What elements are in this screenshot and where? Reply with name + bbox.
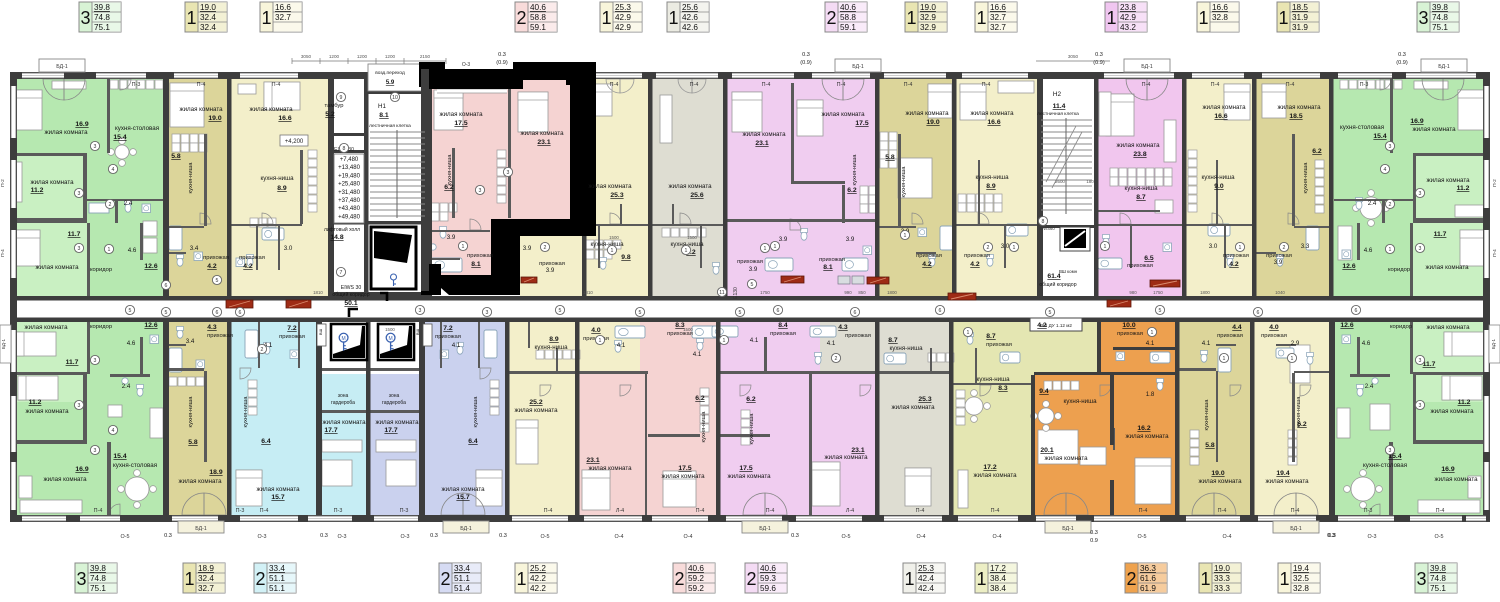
svg-text:кухня-ниша: кухня-ниша [1063, 398, 1097, 405]
svg-text:19.0: 19.0 [1211, 470, 1224, 477]
svg-text:1810: 1810 [313, 290, 323, 295]
svg-text:42.9: 42.9 [615, 23, 631, 32]
svg-text:П-4: П-4 [690, 82, 699, 88]
svg-text:П-3: П-3 [236, 508, 245, 514]
svg-text:прихожая: прихожая [737, 259, 763, 265]
svg-text:8.3: 8.3 [998, 385, 1008, 392]
svg-text:1: 1 [1013, 245, 1016, 251]
svg-text:3.9: 3.9 [846, 236, 855, 243]
svg-text:1: 1 [1389, 247, 1392, 253]
svg-text:4: 4 [1384, 167, 1387, 173]
svg-text:3: 3 [76, 569, 86, 589]
svg-text:1.8: 1.8 [1146, 391, 1155, 398]
svg-text:БД-1: БД-1 [195, 526, 207, 532]
svg-text:0.3: 0.3 [1090, 530, 1098, 536]
svg-text:П-2: П-2 [1492, 179, 1498, 187]
svg-text:32.9: 32.9 [920, 13, 936, 22]
svg-text:4.1: 4.1 [617, 342, 626, 349]
svg-text:1: 1 [1279, 569, 1289, 589]
svg-text:4: 4 [112, 167, 115, 173]
svg-text:8.9: 8.9 [277, 185, 287, 192]
svg-text:О-4: О-4 [917, 534, 926, 540]
svg-text:(0.9): (0.9) [1396, 60, 1408, 66]
svg-text:1: 1 [108, 247, 111, 253]
svg-text:74.8: 74.8 [1432, 13, 1448, 22]
svg-text:2: 2 [1126, 569, 1136, 589]
svg-text:75.1: 75.1 [90, 584, 106, 593]
svg-text:3.9: 3.9 [447, 234, 456, 241]
svg-text:кухня-ниша: кухня-ниша [901, 166, 907, 198]
svg-text:7.2: 7.2 [443, 325, 453, 332]
svg-text:59.3: 59.3 [760, 574, 776, 583]
svg-text:17.5: 17.5 [678, 465, 691, 472]
svg-text:25.6: 25.6 [682, 3, 698, 12]
svg-text:59.1: 59.1 [840, 23, 856, 32]
svg-text:9.8: 9.8 [621, 254, 631, 261]
svg-text:4.6: 4.6 [1364, 247, 1373, 254]
svg-text:жилая комната: жилая комната [375, 419, 419, 426]
svg-text:прихожая: прихожая [467, 253, 493, 259]
svg-text:36.3: 36.3 [1140, 564, 1156, 573]
svg-text:11.7: 11.7 [1434, 231, 1447, 238]
svg-text:10.0: 10.0 [1122, 322, 1135, 329]
svg-text:11.7: 11.7 [66, 359, 79, 366]
svg-text:жилая комната: жилая комната [439, 111, 483, 118]
svg-text:12.6: 12.6 [1342, 263, 1355, 270]
svg-text:1: 1 [668, 8, 678, 28]
svg-text:гардероба: гардероба [331, 400, 355, 406]
svg-text:39.8: 39.8 [94, 3, 110, 12]
svg-text:32.7: 32.7 [198, 584, 214, 593]
svg-text:8.7: 8.7 [888, 337, 898, 344]
svg-text:кухня-столовая: кухня-столовая [113, 462, 157, 469]
svg-text:жилая комната: жилая комната [970, 110, 1014, 117]
svg-text:кухня-ниша: кухня-ниша [852, 154, 858, 186]
svg-text:ВШ: ВШ [318, 329, 323, 336]
svg-text:17.2: 17.2 [990, 564, 1006, 573]
svg-text:П-4: П-4 [272, 82, 281, 88]
svg-text:1: 1 [774, 244, 777, 250]
svg-text:11.2: 11.2 [31, 187, 44, 194]
svg-text:6.2: 6.2 [847, 187, 857, 194]
svg-text:6: 6 [239, 310, 242, 316]
svg-text:жилая комната: жилая комната [821, 111, 865, 118]
svg-text:15.7: 15.7 [271, 494, 284, 501]
svg-text:9.0: 9.0 [1214, 183, 1224, 190]
svg-text:12.6: 12.6 [144, 263, 157, 270]
svg-text:3.0: 3.0 [1001, 243, 1010, 250]
svg-text:23.1: 23.1 [851, 447, 864, 454]
svg-text:4.3: 4.3 [838, 324, 848, 331]
svg-text:4.1: 4.1 [1202, 340, 1211, 347]
svg-text:жилая комната: жилая комната [1412, 126, 1456, 133]
svg-text:6: 6 [1355, 308, 1358, 314]
svg-text:кухня-ниша: кухня-ниша [473, 396, 479, 428]
svg-text:3.4: 3.4 [190, 245, 199, 252]
svg-text:О-3: О-3 [258, 534, 267, 540]
svg-text:4.6: 4.6 [127, 340, 136, 347]
svg-text:О-5: О-5 [1435, 534, 1444, 540]
svg-text:П-4: П-4 [610, 82, 619, 88]
svg-text:6.2: 6.2 [1312, 148, 1322, 155]
svg-text:БД-1: БД-1 [1491, 338, 1496, 349]
svg-text:+37,480: +37,480 [338, 198, 361, 204]
svg-text:0.3: 0.3 [498, 52, 506, 58]
svg-text:лестничная клетка: лестничная клетка [1037, 112, 1079, 117]
svg-text:кухня-ниша: кухня-ниша [749, 413, 755, 445]
svg-text:59.6: 59.6 [760, 584, 776, 593]
svg-text:прихожая: прихожая [1117, 331, 1143, 337]
svg-text:прихожая: прихожая [1127, 263, 1153, 269]
svg-text:2: 2 [987, 245, 990, 251]
svg-text:3.9: 3.9 [749, 266, 758, 273]
svg-text:3: 3 [94, 144, 97, 150]
svg-text:16.9: 16.9 [75, 466, 88, 473]
svg-text:5: 5 [751, 282, 754, 288]
svg-text:БД-1: БД-1 [460, 526, 472, 532]
svg-text:6: 6 [939, 308, 942, 314]
svg-text:М: М [389, 336, 393, 342]
svg-text:7: 7 [340, 270, 343, 276]
svg-text:О-3: О-3 [401, 534, 410, 540]
svg-text:38.4: 38.4 [990, 584, 1006, 593]
svg-text:11.2: 11.2 [29, 399, 42, 406]
svg-text:жилая комната: жилая комната [1044, 455, 1088, 462]
svg-text:1750: 1750 [760, 290, 770, 295]
svg-text:23.1: 23.1 [586, 457, 599, 464]
svg-text:3.9: 3.9 [779, 236, 788, 243]
svg-text:П-4: П-4 [260, 508, 269, 514]
svg-text:кухня-ниша: кухня-ниша [188, 162, 194, 194]
svg-text:17.5: 17.5 [739, 465, 752, 472]
svg-text:П-4: П-4 [94, 508, 103, 514]
svg-text:6.2: 6.2 [746, 396, 756, 403]
svg-text:жилая комната: жилая комната [441, 486, 485, 493]
svg-text:15.4: 15.4 [1373, 133, 1386, 140]
svg-text:8.1: 8.1 [471, 261, 481, 268]
svg-text:4.0: 4.0 [1269, 324, 1279, 331]
svg-text:3: 3 [94, 448, 97, 454]
svg-text:3: 3 [78, 403, 81, 409]
svg-text:жилая комната: жилая комната [588, 465, 632, 472]
svg-text:1: 1 [186, 8, 196, 28]
svg-text:+19,480: +19,480 [338, 173, 361, 179]
svg-text:жилая комната: жилая комната [1202, 104, 1246, 111]
svg-text:25.2: 25.2 [530, 564, 546, 573]
svg-text:42.2: 42.2 [530, 574, 546, 583]
svg-text:коридор: коридор [90, 267, 112, 273]
svg-text:19.0: 19.0 [200, 3, 216, 12]
svg-text:0.3: 0.3 [499, 533, 507, 539]
svg-text:1: 1 [764, 246, 767, 252]
svg-text:П-4: П-4 [762, 82, 771, 88]
svg-text:П-4: П-4 [0, 249, 6, 257]
svg-text:П-4: П-4 [1139, 508, 1148, 514]
svg-text:жилая комната: жилая комната [1198, 478, 1242, 485]
svg-text:32.7: 32.7 [990, 13, 1006, 22]
svg-text:1: 1 [1223, 356, 1226, 362]
svg-text:жилая комната: жилая комната [256, 486, 300, 493]
svg-text:П-4: П-4 [982, 82, 991, 88]
svg-text:EIWS60: EIWS60 [1039, 226, 1055, 231]
svg-text:40.6: 40.6 [530, 3, 546, 12]
svg-text:9: 9 [340, 95, 343, 101]
svg-text:6: 6 [777, 308, 780, 314]
svg-text:980: 980 [1129, 290, 1137, 295]
svg-text:жилая комната: жилая комната [1426, 324, 1470, 331]
svg-text:коридор: коридор [90, 324, 112, 330]
svg-text:15.4: 15.4 [113, 134, 126, 141]
svg-text:жилая комната: жилая комната [1430, 408, 1474, 415]
svg-text:прихожая: прихожая [819, 257, 845, 263]
svg-text:зона: зона [338, 393, 349, 399]
svg-text:П-4: П-4 [916, 508, 925, 514]
svg-text:возд.переход: возд.переход [375, 71, 405, 76]
svg-text:жилая комната: жилая комната [905, 110, 949, 117]
svg-text:2: 2 [261, 347, 264, 353]
svg-text:990: 990 [844, 290, 852, 295]
svg-text:3050: 3050 [301, 54, 312, 59]
svg-text:М: М [342, 336, 346, 342]
svg-text:16.6: 16.6 [990, 3, 1006, 12]
svg-text:1: 1 [904, 569, 914, 589]
svg-text:ВШ: ВШ [415, 329, 420, 336]
svg-text:4.1: 4.1 [1146, 340, 1155, 347]
svg-text:П-4: П-4 [197, 82, 206, 88]
svg-text:О-5: О-5 [842, 534, 851, 540]
svg-text:6: 6 [854, 310, 857, 316]
svg-text:16.9: 16.9 [1441, 466, 1454, 473]
svg-text:жилая комната: жилая комната [727, 473, 771, 480]
svg-text:8.1: 8.1 [379, 112, 389, 119]
svg-text:19.0: 19.0 [208, 115, 221, 122]
svg-text:1200: 1200 [385, 54, 396, 59]
svg-text:прихожая: прихожая [845, 333, 871, 339]
svg-text:П-4: П-4 [544, 508, 553, 514]
svg-text:гардероба: гардероба [382, 400, 406, 406]
svg-text:+4,200: +4,200 [285, 139, 304, 145]
svg-text:18.5: 18.5 [1289, 113, 1302, 120]
svg-text:3: 3 [479, 188, 482, 194]
svg-text:8.1: 8.1 [823, 264, 833, 271]
svg-text:25.3: 25.3 [615, 3, 631, 12]
svg-text:жилая комната: жилая комната [891, 404, 935, 411]
svg-text:П-4: П-4 [1286, 82, 1295, 88]
svg-text:кухня-столовая: кухня-столовая [115, 125, 159, 132]
svg-text:4.0: 4.0 [591, 327, 601, 334]
svg-text:4.2: 4.2 [207, 263, 217, 270]
svg-text:6: 6 [1257, 310, 1260, 316]
svg-text:жилая комната: жилая комната [249, 106, 293, 113]
svg-text:50.1: 50.1 [344, 300, 357, 307]
svg-text:лифтовый холл: лифтовый холл [324, 226, 360, 233]
svg-text:2: 2 [255, 569, 265, 589]
svg-text:2: 2 [1283, 245, 1286, 251]
svg-text:прихожая: прихожая [770, 331, 796, 337]
svg-text:П-3: П-3 [334, 508, 343, 514]
svg-text:20.1: 20.1 [1040, 447, 1053, 454]
svg-text:2: 2 [835, 356, 838, 362]
svg-text:прихожая: прихожая [1223, 253, 1249, 259]
svg-text:+7,480: +7,480 [340, 157, 359, 163]
svg-text:32.8: 32.8 [1212, 13, 1228, 22]
svg-text:2.4: 2.4 [1365, 383, 1374, 390]
svg-text:3.4: 3.4 [186, 338, 195, 345]
svg-text:3: 3 [1418, 8, 1428, 28]
svg-text:П-4: П-4 [696, 508, 705, 514]
svg-text:6.2: 6.2 [695, 395, 705, 402]
svg-text:ВШ комн: ВШ комн [1059, 269, 1078, 274]
svg-text:БД-1: БД-1 [1290, 526, 1302, 532]
svg-text:32.7: 32.7 [275, 13, 291, 22]
svg-text:4.2: 4.2 [1037, 322, 1047, 329]
svg-text:О-4: О-4 [684, 534, 693, 540]
svg-text:3.0: 3.0 [1209, 243, 1218, 250]
svg-text:(0.9): (0.9) [800, 60, 812, 66]
svg-text:11.2: 11.2 [1458, 399, 1471, 406]
svg-text:61.9: 61.9 [1140, 584, 1156, 593]
svg-text:кухня-ниша: кухня-ниша [1124, 185, 1158, 192]
svg-text:11: 11 [719, 290, 724, 296]
svg-text:зона: зона [389, 393, 400, 399]
svg-text:1: 1 [601, 8, 611, 28]
svg-text:кухня-ниша: кухня-ниша [447, 154, 453, 186]
svg-text:3: 3 [419, 308, 422, 314]
svg-text:1: 1 [599, 338, 602, 344]
svg-text:БД-1: БД-1 [759, 526, 771, 532]
svg-text:БД-1: БД-1 [852, 64, 864, 70]
svg-text:жилая комната: жилая комната [520, 130, 564, 137]
svg-text:33.3: 33.3 [1214, 574, 1230, 583]
svg-text:3.0: 3.0 [284, 245, 293, 252]
svg-text:40.6: 40.6 [840, 3, 856, 12]
svg-text:2.4: 2.4 [122, 383, 131, 390]
svg-text:общий коридор: общий коридор [332, 291, 369, 298]
svg-text:прихожая: прихожая [1217, 333, 1243, 339]
svg-text:П-3: П-3 [132, 82, 141, 88]
svg-text:жилая комната: жилая комната [514, 407, 558, 414]
svg-text:(0.9): (0.9) [496, 60, 508, 66]
svg-text:П-3: П-3 [1364, 508, 1373, 514]
svg-text:3: 3 [78, 246, 81, 252]
svg-text:0.3: 0.3 [1095, 52, 1103, 58]
svg-text:Л-4: Л-4 [616, 508, 624, 514]
svg-text:лестничная клетка: лестничная клетка [369, 124, 411, 129]
svg-text:П-3: П-3 [400, 508, 409, 514]
svg-text:4.6: 4.6 [1362, 340, 1371, 347]
svg-text:42.2: 42.2 [530, 584, 546, 593]
svg-text:П-4: П-4 [1492, 249, 1498, 257]
svg-text:кухня-ниша: кухня-ниша [188, 396, 194, 428]
svg-text:3.9: 3.9 [523, 245, 532, 252]
svg-text:жилая комната: жилая комната [824, 454, 868, 461]
svg-text:19.0: 19.0 [926, 119, 939, 126]
svg-text:42.6: 42.6 [682, 23, 698, 32]
svg-text:+43,480: +43,480 [338, 206, 361, 212]
svg-text:1: 1 [1151, 330, 1154, 336]
svg-text:П-4: П-4 [1291, 508, 1300, 514]
svg-text:42.6: 42.6 [682, 13, 698, 22]
svg-text:жилая комната: жилая комната [322, 419, 366, 426]
svg-text:40.6: 40.6 [760, 564, 776, 573]
svg-text:прихожая: прихожая [986, 342, 1012, 348]
svg-text:5.9: 5.9 [386, 80, 395, 86]
svg-text:51.1: 51.1 [269, 574, 285, 583]
svg-text:БД-1: БД-1 [1438, 64, 1450, 70]
svg-text:58.8: 58.8 [840, 13, 856, 22]
svg-text:6.4: 6.4 [261, 438, 271, 445]
svg-text:БД-1: БД-1 [1141, 64, 1153, 70]
svg-text:11.2: 11.2 [1457, 185, 1470, 192]
svg-text:1: 1 [462, 244, 465, 250]
svg-text:850: 850 [858, 290, 866, 295]
svg-text:жилая комната: жилая комната [1425, 264, 1469, 271]
svg-text:прихожая: прихожая [1261, 333, 1287, 339]
svg-text:БД-1: БД-1 [1062, 526, 1074, 532]
svg-text:прихожая: прихожая [964, 253, 990, 259]
svg-text:39.8: 39.8 [1432, 3, 1448, 12]
svg-text:25.2: 25.2 [529, 399, 542, 406]
svg-text:1: 1 [1239, 245, 1242, 251]
svg-text:3: 3 [1419, 246, 1422, 252]
svg-text:EIWS 30: EIWS 30 [341, 285, 362, 291]
svg-text:5: 5 [739, 310, 742, 316]
svg-text:жилая комната: жилая комната [24, 324, 68, 331]
svg-text:2: 2 [109, 202, 112, 208]
svg-text:43.2: 43.2 [1120, 23, 1136, 32]
svg-text:жилая комната: жилая комната [668, 183, 712, 190]
svg-text:кухня-ниша: кухня-ниша [1303, 162, 1309, 194]
svg-text:жилая комната: жилая комната [25, 408, 69, 415]
svg-text:11.4: 11.4 [1053, 103, 1066, 110]
svg-text:О-5: О-5 [541, 534, 550, 540]
svg-text:жилая комната: жилая комната [661, 473, 705, 480]
svg-text:Л-4: Л-4 [846, 508, 854, 514]
svg-text:1: 1 [1278, 8, 1288, 28]
svg-text:жилая комната: жилая комната [1265, 478, 1309, 485]
svg-text:1: 1 [906, 8, 916, 28]
svg-text:5: 5 [1159, 308, 1162, 314]
svg-text:3050: 3050 [1068, 54, 1079, 59]
svg-text:5.2: 5.2 [325, 111, 335, 118]
svg-text:П-4: П-4 [1436, 508, 1445, 514]
svg-text:6.2: 6.2 [1297, 421, 1307, 428]
svg-text:12.6: 12.6 [144, 322, 157, 329]
svg-text:О-3: О-3 [1368, 534, 1377, 540]
svg-text:БД-1: БД-1 [56, 64, 68, 70]
svg-text:О-5: О-5 [1138, 534, 1147, 540]
svg-text:жилая комната: жилая комната [1116, 142, 1160, 149]
svg-text:3: 3 [1419, 191, 1422, 197]
svg-text:О-5: О-5 [121, 534, 130, 540]
svg-text:19.0: 19.0 [920, 3, 936, 12]
svg-text:0.3: 0.3 [802, 52, 810, 58]
svg-text:32.7: 32.7 [990, 23, 1006, 32]
svg-text:0.3: 0.3 [320, 533, 328, 539]
svg-text:2: 2 [544, 245, 547, 251]
svg-text:1750: 1750 [1153, 290, 1163, 295]
svg-text:3: 3 [78, 191, 81, 197]
svg-text:Е130: Е130 [733, 287, 739, 299]
svg-text:2: 2 [516, 8, 526, 28]
svg-text:42.9: 42.9 [1120, 13, 1136, 22]
svg-text:П-4: П-4 [1211, 82, 1220, 88]
svg-text:0.3: 0.3 [791, 533, 799, 539]
svg-text:5: 5 [639, 310, 642, 316]
svg-text:тамбур: тамбур [325, 103, 344, 109]
svg-text:жилая комната: жилая комната [30, 179, 74, 186]
svg-text:16.6: 16.6 [275, 3, 291, 12]
